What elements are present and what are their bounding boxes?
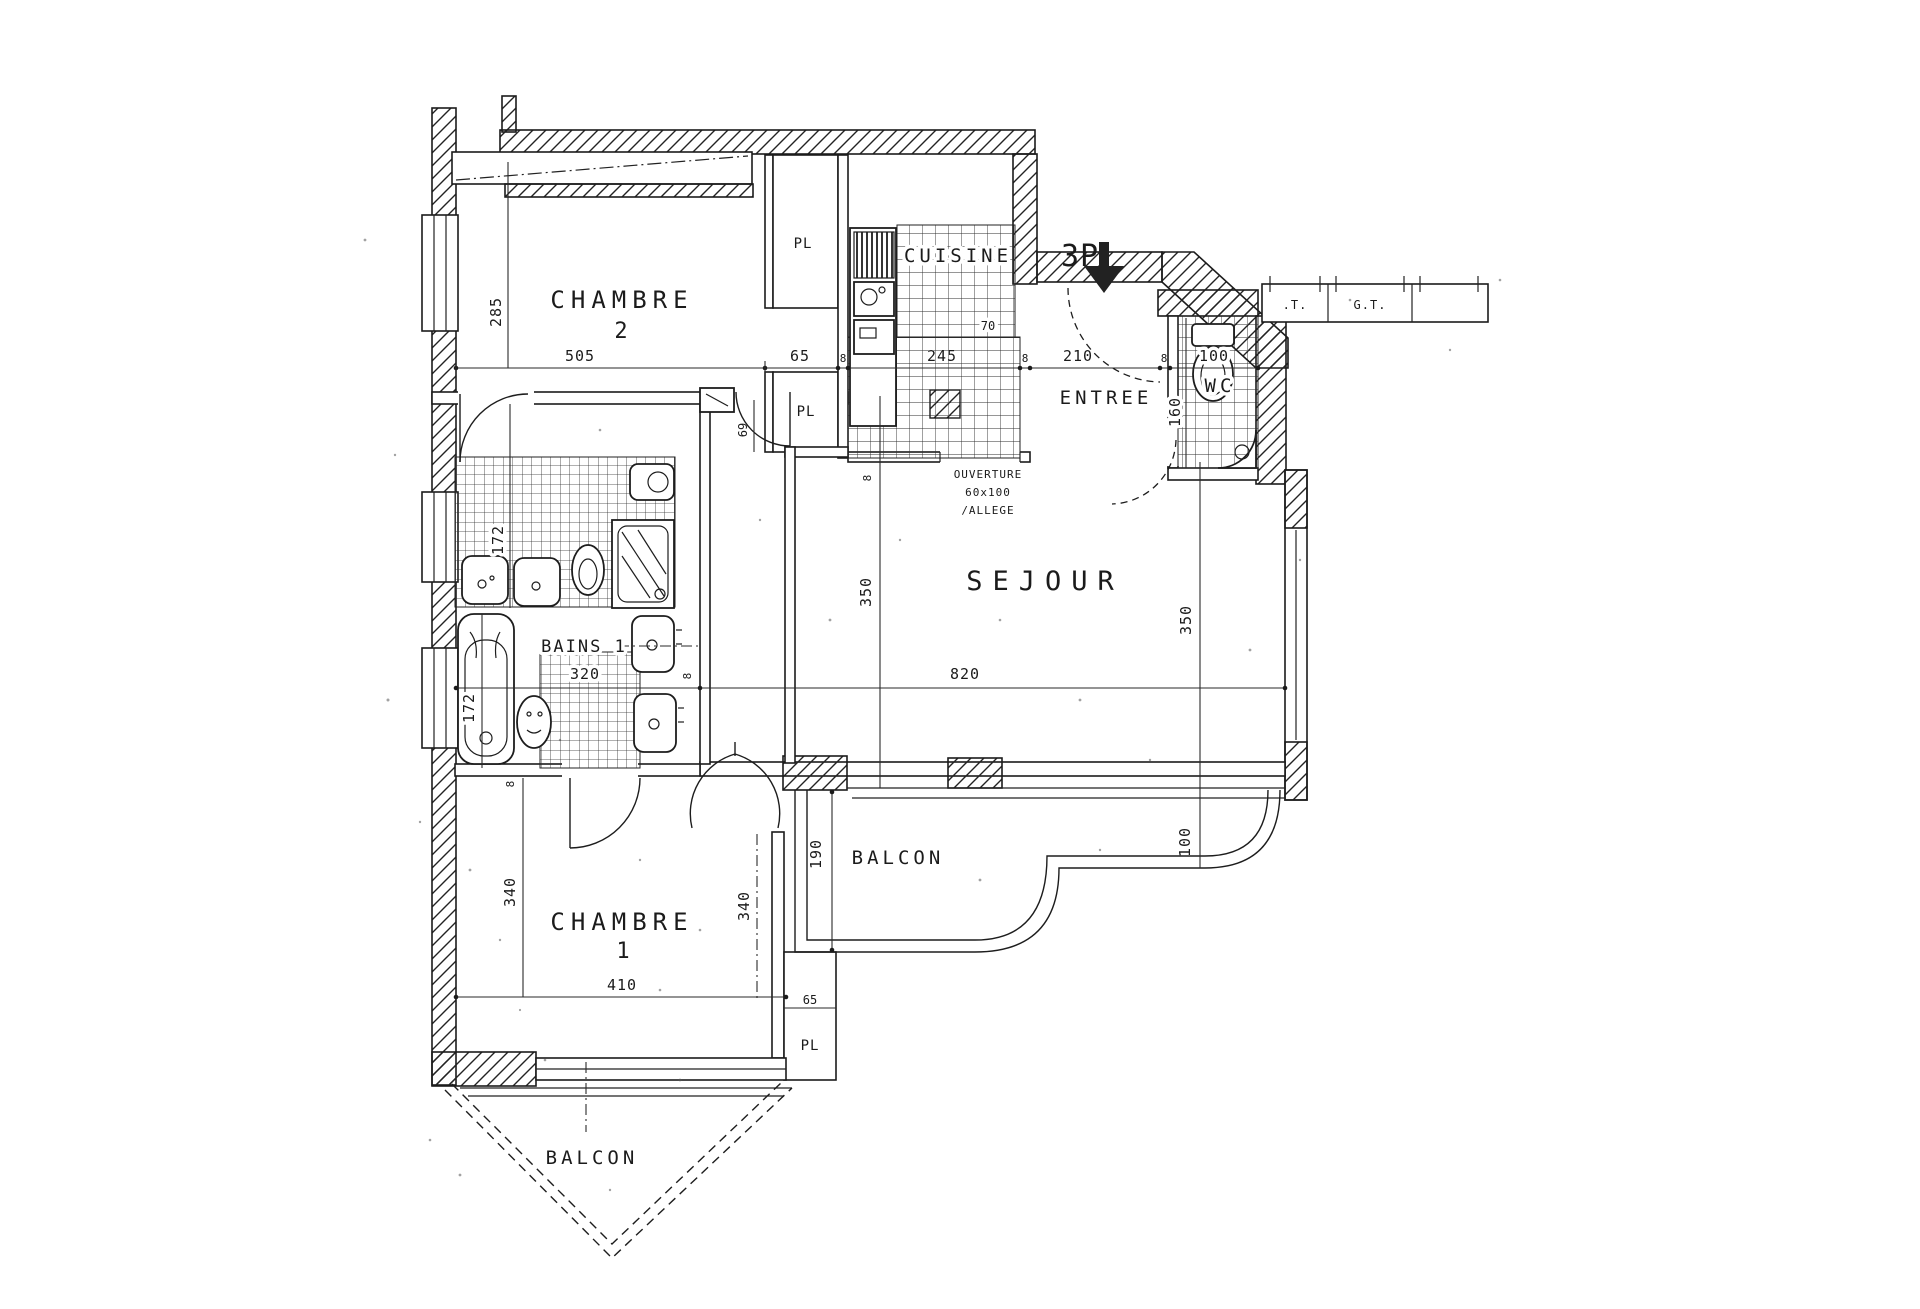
wall-sejour-left (785, 447, 795, 763)
room-label-balcon-east: BALCON (852, 847, 945, 869)
wall-top-exterior (500, 130, 1035, 154)
dim-cuisine-return: 70 (981, 319, 995, 333)
room-label-chambre1: CHAMBRE (550, 908, 693, 936)
dim-wall-b: 8 (1022, 352, 1029, 365)
dim-sejour-depth-right: 350 (1177, 605, 1195, 635)
scanned-floor-plan: CHAMBRE 2 CUISINE ENTREE WC SEJOUR BAINS… (0, 0, 1920, 1309)
dim-wc-width: 100 (1199, 347, 1229, 365)
dim-sejour-depth-left: 350 (857, 577, 875, 607)
dim-bains-depth-upper: 172 (489, 525, 507, 555)
balcon-south-outer (445, 1088, 792, 1258)
wall-wc-top (1158, 290, 1258, 316)
room-label-cuisine: CUISINE (904, 245, 1012, 267)
dim-entree-width: 210 (1063, 347, 1093, 365)
window-west-3 (422, 648, 458, 748)
wall-top-stub (502, 96, 516, 132)
room-label-chambre2: CHAMBRE (550, 286, 693, 314)
dim-wall-c: 8 (1161, 352, 1168, 365)
duct-label-t: .T. (1283, 298, 1308, 312)
wall-cuisine-left (838, 155, 848, 458)
cuisine-tiles-upper (897, 225, 1015, 337)
dim-chambre1-depth-left: 340 (501, 877, 519, 907)
bidet-2 (517, 696, 551, 748)
closet-pl-top (773, 155, 838, 308)
wall-chambre1-right (772, 832, 784, 1058)
bathtub (458, 614, 514, 764)
washbasin-2 (514, 558, 560, 606)
duct-label-gt: G.T. (1354, 298, 1387, 312)
dim-wall-a: 8 (840, 352, 847, 365)
closet-label-pl-chambre1: PL (801, 1038, 820, 1054)
dim-hall-door: 69 (736, 423, 750, 437)
room-label-balcon-south: BALCON (546, 1147, 639, 1169)
wall-tick-b: 8 (681, 673, 694, 680)
note-ouverture-1: OUVERTURE (954, 468, 1023, 481)
dim-chambre1-depth-right: 340 (735, 891, 753, 921)
washbasin-4 (634, 694, 684, 752)
wall-cuisine-right (1013, 154, 1037, 284)
room-label-entree: ENTREE (1060, 387, 1153, 409)
dim-chambre1-pl: 65 (803, 993, 817, 1007)
dim-pl-width: 65 (790, 347, 810, 365)
room-label-sejour: SEJOUR (966, 566, 1124, 597)
dim-wc-depth: 160 (1166, 397, 1184, 427)
wall-chambre1-south-solid (432, 1052, 536, 1086)
dim-sejour-width: 820 (950, 665, 980, 683)
window-west-2 (422, 492, 458, 582)
pillar-b (948, 758, 1002, 788)
room-label-wc: WC (1205, 375, 1236, 397)
wall-wc-right (1256, 316, 1286, 484)
wall-sejour-right (1285, 470, 1307, 800)
dim-cuisine-width: 245 (927, 347, 957, 365)
washbasin-3 (632, 616, 682, 672)
dim-chambre1-width: 410 (607, 976, 637, 994)
note-ouverture-2: 60x100 (965, 486, 1011, 499)
dim-chambre2-width: 505 (565, 347, 595, 365)
window-west-1 (422, 215, 458, 331)
note-ouverture-3: /ALLEGE (961, 504, 1014, 517)
ledge-hatch (505, 184, 753, 197)
wall-wc-south (1168, 468, 1258, 480)
radiator (700, 388, 734, 412)
room-number-chambre1: 1 (616, 939, 631, 964)
wall-tick-a: 8 (861, 475, 874, 482)
kitchen-vent-shaft (930, 390, 960, 418)
dim-chambre2-depth: 285 (487, 297, 505, 327)
shower (612, 520, 674, 608)
bidet-1 (572, 545, 604, 595)
room-number-chambre2: 2 (614, 319, 629, 344)
dim-bains-width: 320 (570, 665, 600, 683)
wall-bains-right (700, 404, 710, 764)
kitchen-unit (850, 228, 896, 426)
floor-plan-svg: CHAMBRE 2 CUISINE ENTREE WC SEJOUR BAINS… (0, 0, 1920, 1309)
washbasin-1 (462, 556, 508, 604)
apartment-type-label: 3P (1061, 239, 1099, 274)
dim-bains-depth-lower: 172 (460, 693, 478, 723)
room-label-bains: BAINS 1 (541, 637, 627, 657)
wall-tick-c: 8 (504, 781, 517, 788)
closet-label-pl-top: PL (794, 236, 813, 252)
hand-basin (630, 464, 674, 500)
dim-balcon-depth-right: 100 (1176, 827, 1194, 857)
pl-column-chambre1 (784, 952, 836, 1080)
closet-label-pl-hall: PL (797, 404, 816, 420)
dim-balcon-depth: 190 (807, 839, 825, 869)
door-bains (570, 778, 640, 848)
wall-pl-left-top (765, 155, 773, 308)
balcon-east-outer (795, 790, 1280, 952)
